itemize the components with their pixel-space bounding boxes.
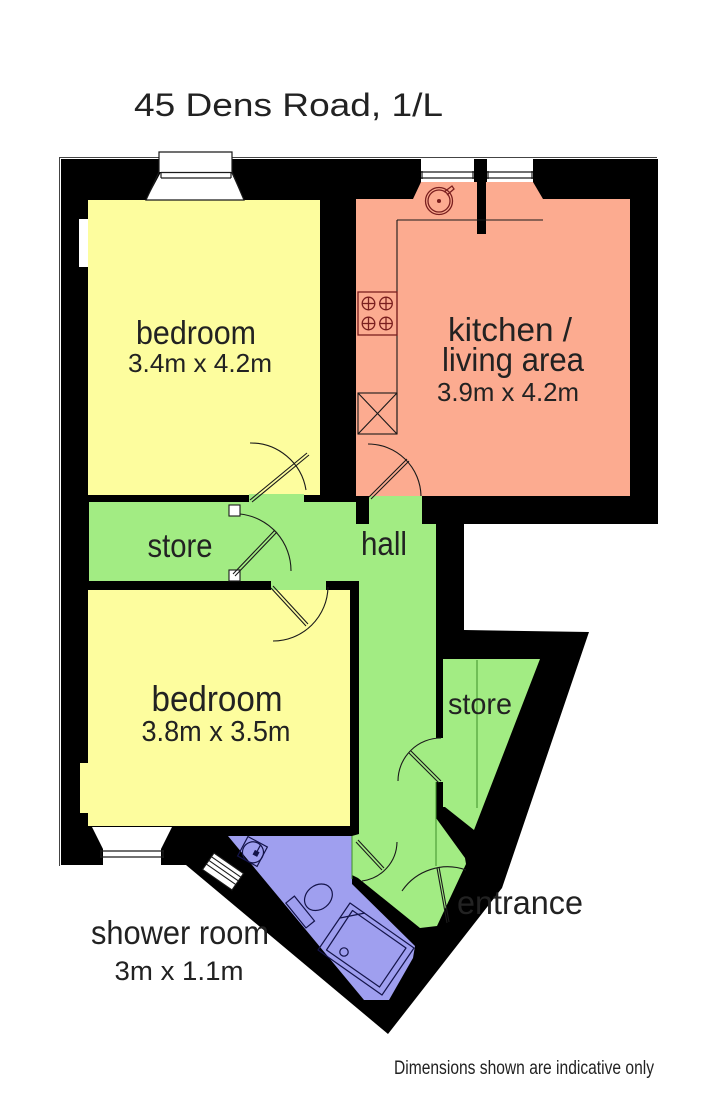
svg-text:hall: hall — [361, 525, 407, 562]
svg-text:3.9m x 4.2m: 3.9m x 4.2m — [437, 377, 579, 407]
svg-text:shower room: shower room — [91, 914, 269, 951]
svg-text:Dimensions shown are indicativ: Dimensions shown are indicative only — [394, 1058, 654, 1079]
svg-text:45 Dens Road, 1/L: 45 Dens Road, 1/L — [134, 87, 443, 123]
svg-text:3.4m x 4.2m: 3.4m x 4.2m — [128, 348, 272, 378]
svg-text:3.8m x 3.5m: 3.8m x 3.5m — [142, 716, 291, 748]
svg-text:living area: living area — [442, 341, 585, 378]
svg-text:bedroom: bedroom — [152, 678, 283, 719]
svg-text:3m x 1.1m: 3m x 1.1m — [115, 956, 244, 986]
svg-text:store: store — [148, 527, 213, 564]
svg-text:entrance: entrance — [457, 884, 583, 921]
svg-text:bedroom: bedroom — [136, 314, 256, 351]
svg-text:store: store — [448, 688, 512, 721]
